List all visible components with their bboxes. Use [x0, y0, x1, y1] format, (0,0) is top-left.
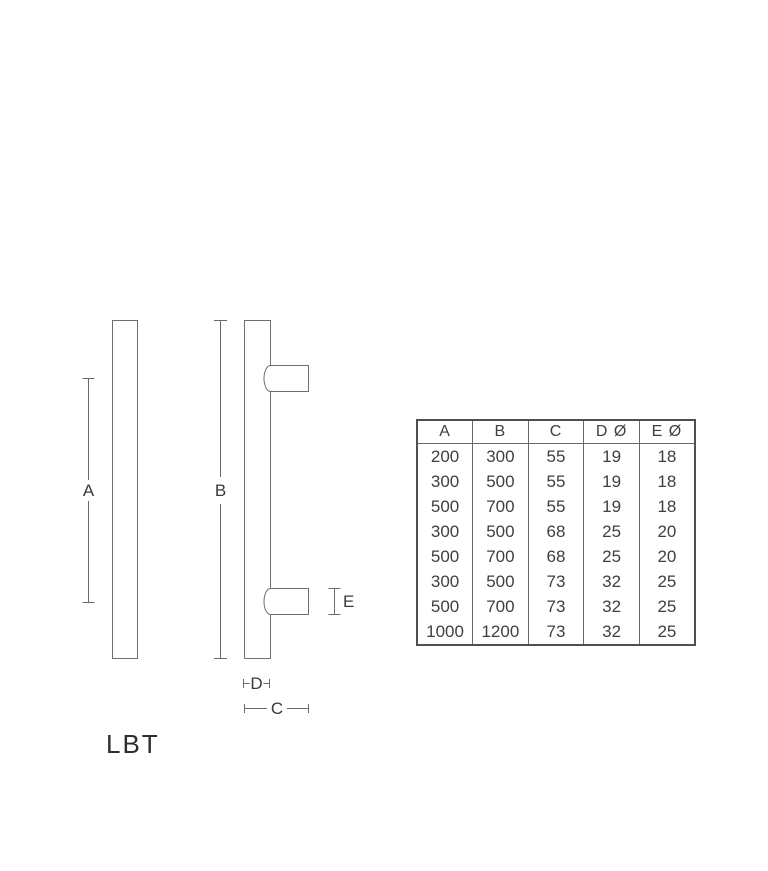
table-cell: 55 [528, 494, 584, 519]
table-row: 200300551918 [417, 444, 695, 470]
dim-d-label: D [250, 674, 262, 693]
dim-a-label: A [83, 481, 95, 500]
table-cell: 1000 [417, 619, 473, 645]
table-row: 300500551918 [417, 469, 695, 494]
table-header-row: ABCD ØE Ø [417, 420, 695, 444]
table-cell: 32 [584, 569, 640, 594]
table-cell: 32 [584, 594, 640, 619]
table-cell: 18 [639, 469, 695, 494]
dim-c: C [245, 699, 309, 718]
table-cell: 200 [417, 444, 473, 470]
dim-e-label: E [343, 592, 354, 611]
table-cell: 55 [528, 469, 584, 494]
dim-b-label: B [215, 481, 226, 500]
dim-b: B [214, 321, 227, 659]
table-row: 300500733225 [417, 569, 695, 594]
table-cell: 500 [417, 494, 473, 519]
table-cell: 20 [639, 519, 695, 544]
table-cell: 19 [584, 469, 640, 494]
dim-a: A [83, 379, 95, 603]
table-cell: 73 [528, 619, 584, 645]
front-view-lower-post [264, 589, 309, 615]
table-cell: 1200 [473, 619, 529, 645]
table-cell: 700 [473, 494, 529, 519]
table-cell: 300 [473, 444, 529, 470]
table-cell: 19 [584, 494, 640, 519]
table-header-cell: E Ø [639, 420, 695, 444]
table-cell: 73 [528, 594, 584, 619]
dim-e-line [329, 589, 341, 615]
product-name: LBT [106, 729, 160, 760]
table-row: 500700733225 [417, 594, 695, 619]
dim-d: D [244, 674, 270, 693]
table-row: 500700682520 [417, 544, 695, 569]
front-view-drawing [245, 321, 309, 659]
table-cell: 25 [639, 619, 695, 645]
table-cell: 700 [473, 594, 529, 619]
dim-c-label: C [271, 699, 283, 718]
table-cell: 25 [584, 544, 640, 569]
table-cell: 700 [473, 544, 529, 569]
spec-table-body: 2003005519183005005519185007005519183005… [417, 444, 695, 646]
table-cell: 300 [417, 469, 473, 494]
table-cell: 20 [639, 544, 695, 569]
table-cell: 500 [473, 519, 529, 544]
table-cell: 500 [417, 544, 473, 569]
table-cell: 55 [528, 444, 584, 470]
table-cell: 500 [473, 469, 529, 494]
table-cell: 500 [473, 569, 529, 594]
table-cell: 300 [417, 569, 473, 594]
side-view-bar [113, 321, 138, 659]
table-cell: 25 [639, 594, 695, 619]
table-row: 500700551918 [417, 494, 695, 519]
table-cell: 18 [639, 444, 695, 470]
table-cell: 73 [528, 569, 584, 594]
table-cell: 25 [584, 519, 640, 544]
table-cell: 500 [417, 594, 473, 619]
table-header-cell: A [417, 420, 473, 444]
table-cell: 68 [528, 544, 584, 569]
table-header-cell: C [528, 420, 584, 444]
table-row: 10001200733225 [417, 619, 695, 645]
front-view-bar [245, 321, 271, 659]
table-header-cell: B [473, 420, 529, 444]
spec-table: ABCD ØE Ø 200300551918300500551918500700… [416, 419, 696, 646]
table-cell: 68 [528, 519, 584, 544]
table-cell: 25 [639, 569, 695, 594]
table-cell: 18 [639, 494, 695, 519]
table-row: 300500682520 [417, 519, 695, 544]
dim-e: E [329, 589, 355, 615]
side-view-drawing [113, 321, 138, 659]
table-cell: 19 [584, 444, 640, 470]
front-view-upper-post [264, 366, 309, 392]
table-cell: 300 [417, 519, 473, 544]
table-header-cell: D Ø [584, 420, 640, 444]
table-cell: 32 [584, 619, 640, 645]
